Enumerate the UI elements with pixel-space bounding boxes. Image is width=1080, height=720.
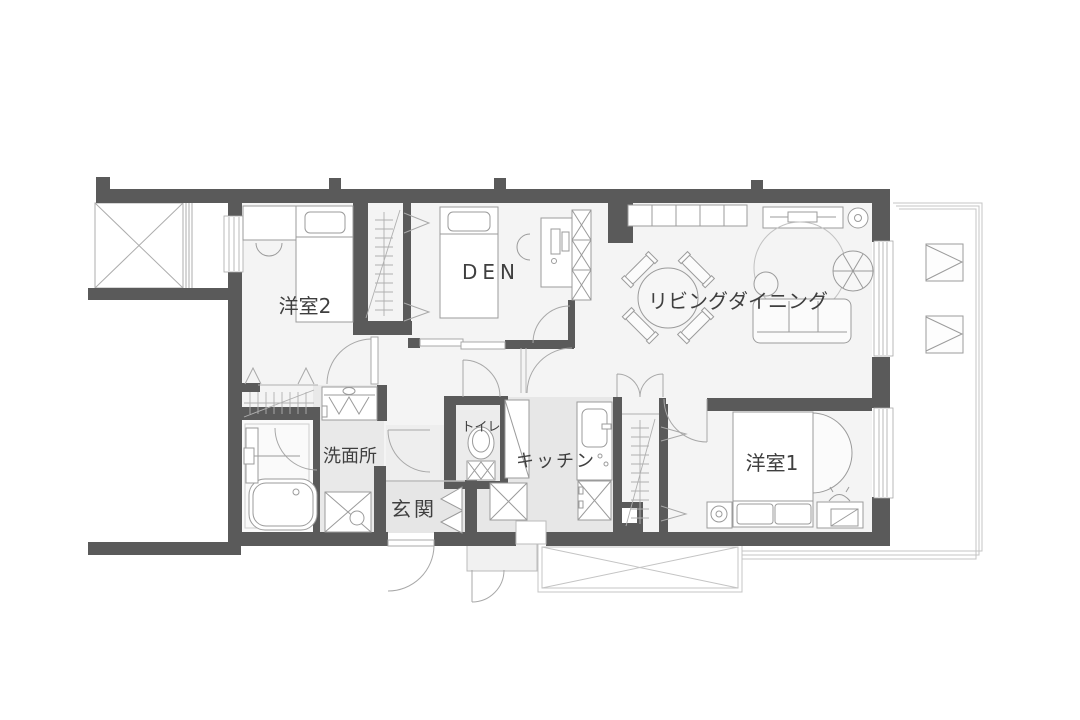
vanity-faucet	[343, 388, 355, 395]
wall-toilet-left	[444, 396, 456, 489]
entrance-door-arc	[388, 546, 434, 591]
room-label-bedroom1: 洋室1	[746, 451, 799, 475]
wall-bedroom2-closet	[353, 203, 368, 324]
wall-bedroom2-sw	[228, 383, 260, 392]
door-leaf-bedroom2	[371, 337, 378, 384]
pillow	[737, 504, 773, 524]
pillow	[305, 212, 345, 233]
room-label-washroom: 洗面所	[323, 446, 377, 467]
window-bedroom2	[224, 216, 243, 272]
wall-den-south	[505, 340, 574, 349]
plant-icon	[848, 208, 868, 228]
ac-outdoor-unit-icon	[926, 244, 963, 281]
sliding-door-den	[420, 339, 463, 346]
desk	[243, 206, 296, 240]
service-yard-cross	[542, 547, 738, 588]
floor-plan-page: 洋室2 DEN リビングダイニング 洋室1 トイレ キッチン 洗面所 玄関	[0, 0, 1080, 720]
wall-entrance-right	[465, 480, 477, 533]
floor-plan-drawing: 洋室2 DEN リビングダイニング 洋室1 トイレ キッチン 洗面所 玄関	[0, 0, 1080, 720]
wall-under-closet	[353, 321, 412, 335]
shaft-door-lines	[186, 203, 192, 288]
wall-bottom	[434, 532, 516, 546]
vanity-side	[322, 406, 327, 417]
wall-corner-ne	[872, 192, 890, 242]
wall-stub	[96, 177, 110, 203]
wall-stub	[329, 178, 341, 203]
monitor-icon	[562, 232, 569, 251]
fridge-handle	[579, 487, 583, 494]
wall-right-mid	[872, 357, 890, 408]
elevator-shaft	[95, 203, 192, 288]
kitchen-service-door	[516, 521, 546, 544]
room-label-entrance: 玄関	[391, 497, 437, 521]
wall-left	[228, 271, 242, 546]
wall-stub	[494, 178, 506, 203]
room-label-bedroom2: 洋室2	[279, 294, 332, 318]
room-label-living-dining: リビングダイニング	[648, 289, 828, 313]
room-label-toilet: トイレ	[461, 420, 500, 435]
wall-bottom-left	[88, 542, 241, 555]
wall-right-bottom	[872, 497, 890, 546]
wall-shaft-bottom	[88, 288, 240, 300]
wall-partition	[568, 300, 575, 348]
wall-bedroom1-left	[659, 404, 668, 533]
bathtub	[249, 479, 317, 530]
ac-outdoor-units	[926, 244, 963, 353]
entrance-door-leaf	[388, 540, 434, 546]
wall-stub	[751, 180, 763, 203]
sideboard	[628, 205, 747, 226]
wall-den-south-stub	[408, 338, 420, 348]
shower-icon	[244, 448, 254, 464]
faucet-icon	[602, 424, 611, 429]
pipe-space-box	[622, 508, 637, 523]
wall-bottom	[240, 532, 388, 546]
wall-vanity-right	[377, 385, 387, 421]
wall-bedroom1-top	[707, 398, 872, 411]
wall-bottom	[546, 532, 872, 546]
window-living	[874, 241, 893, 356]
room-label-den: DEN	[462, 260, 520, 284]
room-label-kitchen: キッチン	[516, 451, 596, 472]
tv-icon	[788, 212, 817, 222]
pillow	[775, 504, 811, 524]
sliding-door-den	[461, 342, 505, 349]
washing-machine-drum	[350, 511, 364, 525]
window-bedroom1	[874, 408, 893, 498]
entrance-porch	[467, 543, 537, 571]
porch-door-arc	[472, 570, 504, 602]
ac-outdoor-unit-icon	[926, 316, 963, 353]
computer-icon	[551, 229, 560, 254]
pillow	[448, 212, 490, 231]
fridge-handle	[579, 501, 583, 508]
toilet-tank	[467, 461, 495, 480]
wall-washroom-entrance	[374, 466, 386, 532]
wall-closet-den	[403, 203, 411, 324]
